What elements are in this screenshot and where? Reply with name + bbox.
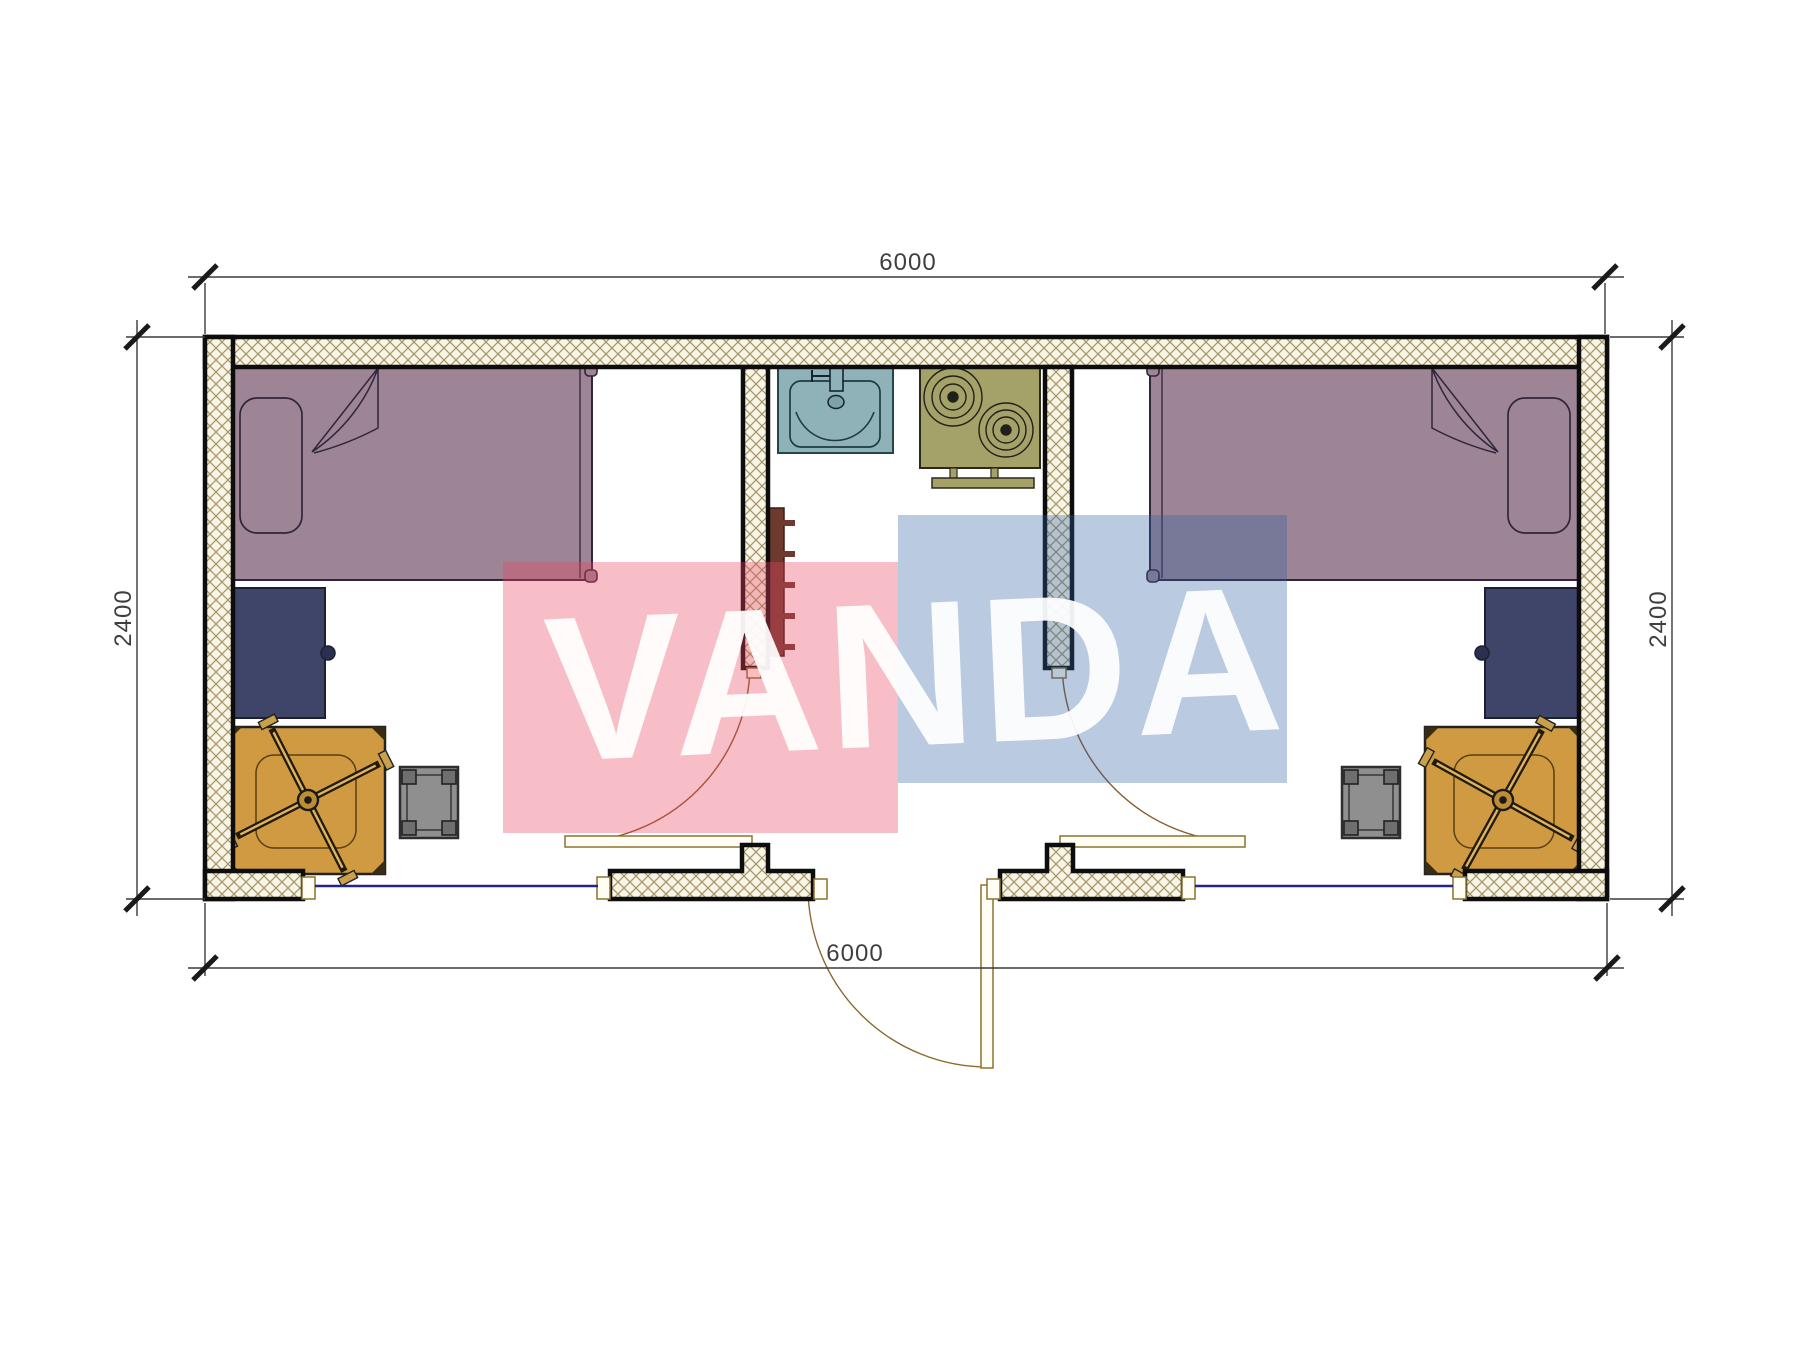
pillow-left-icon — [240, 398, 302, 533]
wall-bottom-left-pier — [610, 845, 813, 899]
watermark-text: VANDA — [540, 543, 1292, 805]
wall-top — [205, 337, 1607, 367]
desk-knob-icon — [1475, 646, 1489, 660]
desk-left-icon — [230, 588, 335, 718]
wall-bottom-left-corner — [205, 871, 303, 899]
dimension-label-top: 6000 — [879, 249, 936, 276]
stove-icon — [920, 363, 1040, 488]
dimension-label-left: 2400 — [110, 589, 137, 646]
floor-plan-drawing: 6000 6000 2400 2400 VANDA — [0, 0, 1800, 1350]
stove-handle-icon — [932, 478, 1034, 488]
wall-left — [205, 337, 233, 899]
dimension-label-right: 2400 — [1645, 590, 1672, 647]
wall-bottom-right-pier — [1000, 845, 1183, 899]
wall-bottom-right-corner — [1465, 871, 1607, 899]
wall-right — [1579, 337, 1607, 899]
entry-door-icon — [808, 885, 993, 1068]
desk-right-icon — [1475, 588, 1580, 718]
stool-left-icon — [400, 767, 458, 838]
faucet-icon — [830, 367, 843, 391]
sink-icon — [778, 364, 893, 453]
stool-right-icon — [1342, 767, 1400, 838]
watermark: VANDA — [503, 515, 1292, 833]
drain-icon — [828, 396, 844, 409]
bed-left-icon — [233, 364, 597, 582]
floor-plan-canvas: 6000 6000 2400 2400 VANDA — [0, 0, 1800, 1350]
dimension-label-bottom: 6000 — [826, 940, 883, 967]
desk-knob-icon — [321, 646, 335, 660]
